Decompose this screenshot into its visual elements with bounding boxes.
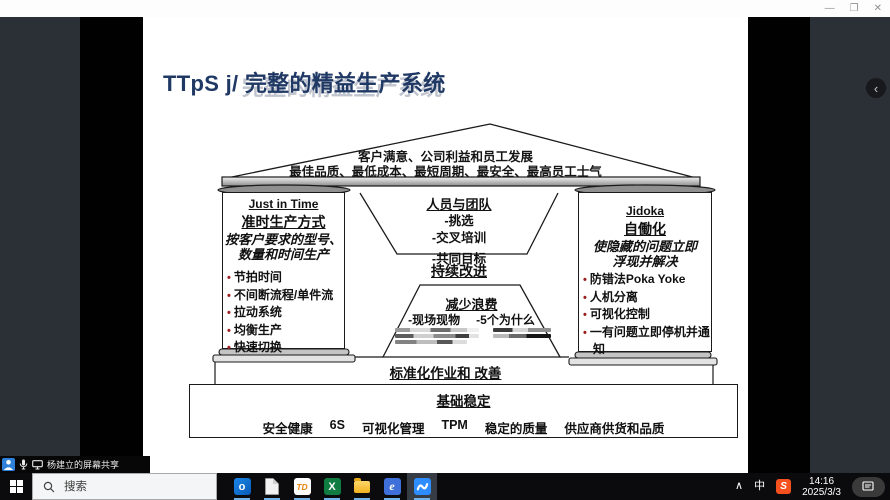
windows-logo-icon [10,480,23,493]
taskbar-item-document[interactable] [257,473,287,500]
list-item: 均衡生产 [227,322,344,340]
foundation-box: 基础稳定 安全健康 6S 可视化管理 TPM 稳定的质量 供应商供货和品质 [189,384,738,438]
five-whys-label: -5个为什么 [476,311,535,328]
folder-icon [354,481,370,493]
jit-desc-line2: 数量和时间生产 [223,247,344,262]
list-item: 稳定的质量 [485,418,548,437]
e-app-icon: e [384,478,401,495]
foundation-items: 安全健康 6S 可视化管理 TPM 稳定的质量 供应商供货和品质 [190,418,737,437]
taskbar-item-file-explorer[interactable] [347,473,377,500]
list-item: 一有问题立即停机并通知 [583,324,711,358]
tray-chevron-up-icon[interactable]: ∧ [735,481,743,492]
list-item: 拉动系统 [227,304,344,322]
jidoka-bullet-list: 防错法Poka Yoke 人机分离 可视化控制 一有问题立即停机并通知 [583,271,711,358]
list-item: 供应商供货和品质 [564,418,664,437]
list-item: 可视化控制 [583,306,711,324]
document-icon [265,478,279,495]
jidoka-title-cn: 自働化 [579,219,711,239]
outlook-icon: o [234,478,251,495]
continuous-improvement-label: 持续改进 [360,261,558,281]
avatar [2,458,15,471]
taskbar-search[interactable] [32,473,217,500]
list-item: 可视化管理 [362,418,425,437]
search-icon [43,481,55,493]
bar-group-left [395,328,479,346]
jidoka-pillar: Jidoka 自働化 使隐藏的问题立即 浮现并解决 防错法Poka Yoke 人… [578,192,712,352]
list-item: 人机分离 [583,289,711,307]
list-item: 安全健康 [263,418,313,437]
taskbar: o TD X e [0,473,890,500]
waste-methods-row: -现场现物 -5个为什么 [378,311,565,328]
list-item: 节拍时间 [227,269,344,287]
slide-right-margin [748,17,810,473]
jidoka-description: 使隐藏的问题立即 浮现并解决 [579,239,711,269]
list-item: -挑选 [360,213,558,230]
stacked-bars-image [395,328,551,346]
foundation-title: 基础稳定 [190,390,737,410]
left-panel-area [0,17,80,473]
slide-left-margin [80,17,143,473]
td-app-icon: TD [294,478,311,495]
meeting-app-icon [414,478,431,495]
jit-title-en: Just in Time [223,197,344,211]
microphone-icon [19,459,28,470]
window-controls: — ❐ ✕ [825,0,882,17]
system-tray: ∧ 中 S 14:16 2025/3/3 [735,476,890,498]
taskbar-item-excel[interactable]: X [317,473,347,500]
taskbar-app-icons: o TD X e [227,473,437,500]
taskbar-item-e-app[interactable]: e [377,473,407,500]
presentation-slide: TTpS j/ 完整的精益生产系统 [143,17,748,473]
jidoka-desc-line2: 浮现并解决 [579,254,711,269]
close-icon[interactable]: ✕ [874,4,882,14]
screen-icon [32,460,43,470]
maximize-icon[interactable]: ❐ [850,4,859,14]
window-titlebar: — ❐ ✕ [0,0,890,17]
chevron-left-icon: ‹ [874,82,878,95]
jidoka-title-en: Jidoka [579,204,711,218]
list-item: 快速切换 [227,339,344,357]
list-item: 6S [330,418,345,437]
taskbar-item-outlook[interactable]: o [227,473,257,500]
team-block: 人员与团队 -挑选 -交叉培训 -共同目标 [360,194,558,268]
standard-work-label: 标准化作业和 改善 [143,362,748,382]
desktop: — ❐ ✕ ‹ TTpS j/ 完整的精益生产系统 [0,0,890,500]
sogou-input-icon[interactable]: S [776,479,791,494]
jit-bullet-list: 节拍时间 不间断流程/单件流 拉动系统 均衡生产 快速切换 [227,269,344,357]
jit-desc-line1: 按客户要求的型号、 [223,232,344,247]
roof-goal-line2: 最佳品质、最低成本、最短周期、最安全、最高员工士气 [143,161,748,180]
slide-title: TTpS j/ 完整的精益生产系统 [163,66,446,98]
list-item: -交叉培训 [360,230,558,247]
clock-time: 14:16 [802,476,841,487]
team-title: 人员与团队 [360,194,558,213]
minimize-icon[interactable]: — [825,4,835,14]
action-center-button[interactable] [852,477,885,497]
jit-description: 按客户要求的型号、 数量和时间生产 [223,232,344,262]
bar-group-right [493,328,551,340]
jidoka-desc-line1: 使隐藏的问题立即 [579,239,711,254]
excel-icon: X [324,478,341,495]
taskbar-item-meeting[interactable] [407,473,437,500]
list-item: 不间断流程/单件流 [227,287,344,305]
slide-title-main: 完整的精益生产系统 [245,71,446,96]
list-item: 防错法Poka Yoke [583,271,711,289]
search-input[interactable] [62,480,186,494]
screen-share-banner[interactable]: 杨建立的屏幕共享 [0,456,150,473]
jit-pillar: Just in Time 准时生产方式 按客户要求的型号、 数量和时间生产 节拍… [222,192,345,349]
panel-toggle-button[interactable]: ‹ [866,78,886,98]
taskbar-item-td[interactable]: TD [287,473,317,500]
genchi-genbutsu-label: -现场现物 [408,311,460,328]
share-banner-label: 杨建立的屏幕共享 [47,458,119,471]
slide-title-prefix: TTpS j/ [163,71,238,96]
clock-date: 2025/3/3 [802,487,841,498]
start-button[interactable] [0,473,32,500]
list-item: TPM [441,418,467,437]
ime-indicator[interactable]: 中 [754,481,765,492]
notification-icon [862,480,875,493]
jit-title-cn: 准时生产方式 [223,212,344,232]
clock[interactable]: 14:16 2025/3/3 [802,476,841,498]
